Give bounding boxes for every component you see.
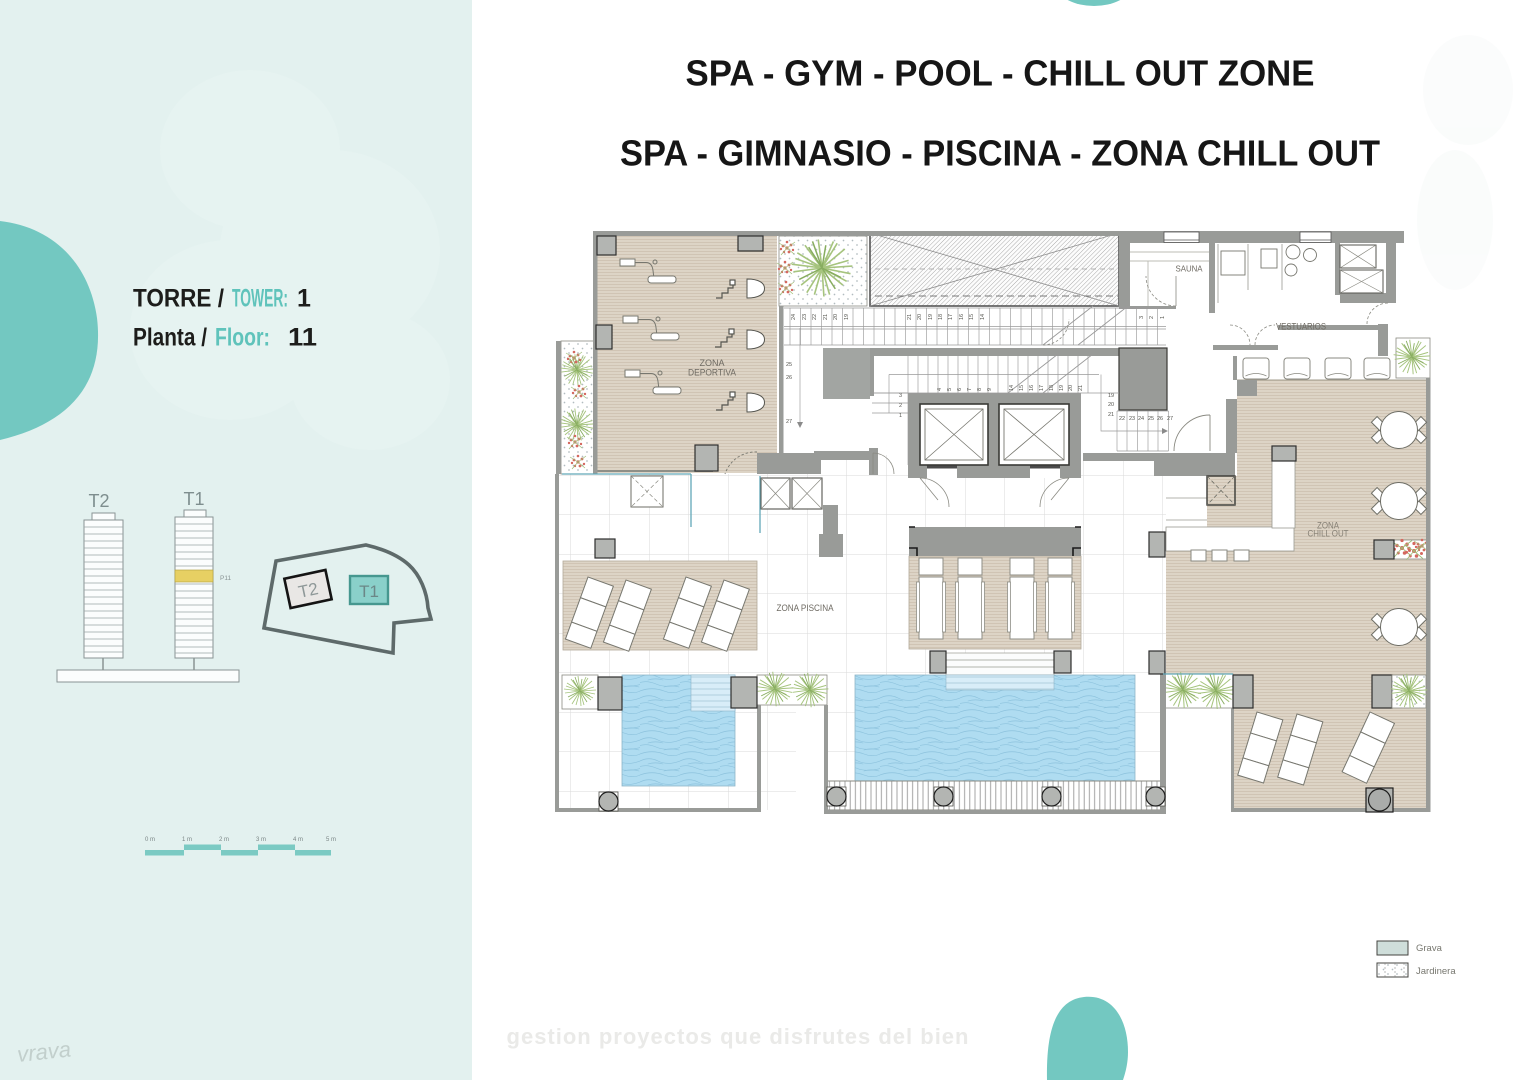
svg-text:Floor:: Floor: (215, 324, 270, 352)
svg-text:VESTUARIOS: VESTUARIOS (1276, 322, 1326, 332)
svg-text:gestion proyectos que disfrute: gestion proyectos que disfrutes del bien (507, 1024, 970, 1049)
svg-text:6: 6 (957, 388, 963, 391)
svg-text:7: 7 (967, 388, 973, 391)
svg-text:5: 5 (947, 388, 953, 391)
svg-text:22: 22 (812, 314, 818, 320)
svg-text:19: 19 (1059, 385, 1065, 391)
svg-text:TORRE /: TORRE / (133, 285, 224, 313)
svg-text:TOWER:: TOWER: (232, 285, 288, 313)
svg-text:21: 21 (1078, 385, 1084, 391)
svg-text:18: 18 (938, 314, 944, 320)
svg-text:24: 24 (791, 314, 797, 320)
svg-text:15: 15 (1019, 385, 1025, 391)
svg-text:1: 1 (1160, 316, 1166, 319)
svg-text:Planta /: Planta / (133, 324, 207, 352)
svg-text:9: 9 (987, 388, 993, 391)
svg-text:1: 1 (297, 285, 311, 313)
svg-text:4: 4 (937, 388, 943, 391)
svg-text:1: 1 (899, 413, 902, 419)
svg-text:DEPORTIVA: DEPORTIVA (688, 368, 736, 378)
svg-text:ZONA: ZONA (700, 358, 725, 368)
svg-text:4 m: 4 m (293, 837, 303, 843)
svg-text:5 m: 5 m (326, 837, 336, 843)
svg-text:24: 24 (1138, 416, 1144, 422)
svg-text:17: 17 (948, 314, 954, 320)
svg-text:Grava: Grava (1416, 943, 1443, 954)
svg-text:21: 21 (823, 314, 829, 320)
svg-text:19: 19 (1108, 393, 1114, 399)
svg-text:SPA - GYM - POOL - CHILL OUT Z: SPA - GYM - POOL - CHILL OUT ZONE (686, 53, 1315, 94)
svg-text:19: 19 (844, 314, 850, 320)
svg-text:27: 27 (786, 419, 792, 425)
svg-text:2: 2 (899, 403, 902, 409)
svg-text:T1: T1 (359, 582, 379, 601)
svg-text:0 m: 0 m (145, 837, 155, 843)
svg-text:3: 3 (899, 393, 902, 399)
svg-text:21: 21 (907, 314, 913, 320)
svg-text:SPA - GIMNASIO - PISCINA - ZON: SPA - GIMNASIO - PISCINA - ZONA CHILL OU… (620, 133, 1380, 174)
svg-text:21: 21 (1108, 412, 1114, 418)
svg-text:18: 18 (1049, 385, 1055, 391)
svg-text:T1: T1 (183, 489, 204, 509)
svg-text:2: 2 (1149, 316, 1155, 319)
svg-text:26: 26 (1157, 416, 1163, 422)
svg-text:25: 25 (786, 362, 792, 368)
svg-text:15: 15 (969, 314, 975, 320)
svg-text:T2: T2 (297, 579, 320, 602)
svg-text:17: 17 (1039, 385, 1045, 391)
svg-text:23: 23 (1129, 416, 1135, 422)
svg-text:23: 23 (802, 314, 808, 320)
svg-text:16: 16 (1029, 385, 1035, 391)
svg-text:CHILL OUT: CHILL OUT (1308, 529, 1350, 539)
svg-text:27: 27 (1167, 416, 1173, 422)
svg-text:20: 20 (833, 314, 839, 320)
svg-text:14: 14 (980, 314, 986, 320)
svg-text:11: 11 (288, 324, 317, 352)
svg-text:20: 20 (1108, 402, 1114, 408)
svg-text:14: 14 (1009, 385, 1015, 391)
svg-text:19: 19 (928, 314, 934, 320)
svg-text:P11: P11 (220, 575, 231, 582)
svg-text:Jardinera: Jardinera (1416, 966, 1456, 977)
svg-text:3: 3 (1139, 316, 1145, 319)
svg-text:22: 22 (1119, 416, 1125, 422)
svg-text:25: 25 (1148, 416, 1154, 422)
svg-text:3 m: 3 m (256, 837, 266, 843)
svg-text:20: 20 (917, 314, 923, 320)
svg-text:1 m: 1 m (182, 837, 192, 843)
svg-text:16: 16 (959, 314, 965, 320)
svg-text:T2: T2 (88, 491, 109, 511)
svg-text:26: 26 (786, 375, 792, 381)
svg-text:SAUNA: SAUNA (1176, 264, 1203, 274)
svg-text:8: 8 (977, 388, 983, 391)
svg-text:2 m: 2 m (219, 837, 229, 843)
svg-text:ZONA PISCINA: ZONA PISCINA (777, 603, 835, 614)
svg-text:20: 20 (1068, 385, 1074, 391)
